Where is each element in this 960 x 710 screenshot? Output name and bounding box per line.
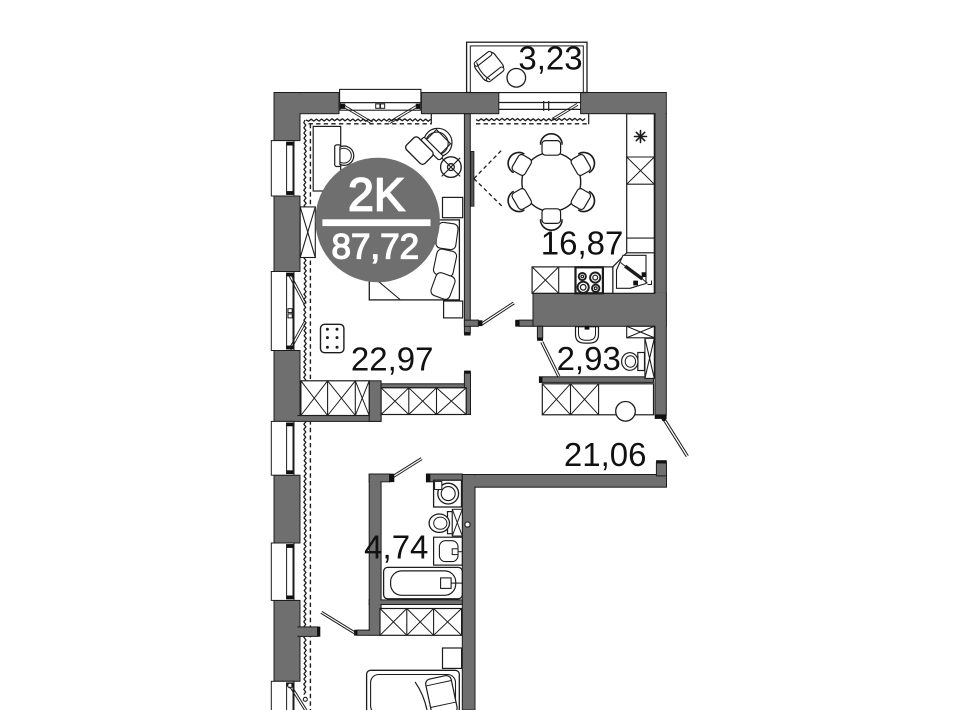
svg-text:4,74: 4,74 — [364, 529, 428, 566]
svg-text:22,97: 22,97 — [351, 341, 434, 378]
svg-text:16,87: 16,87 — [541, 224, 624, 261]
svg-text:3,23: 3,23 — [518, 40, 582, 77]
svg-text:87,72: 87,72 — [332, 228, 420, 267]
svg-text:21,06: 21,06 — [564, 436, 647, 473]
svg-text:2,93: 2,93 — [557, 340, 621, 377]
svg-text:2K: 2K — [348, 168, 405, 220]
